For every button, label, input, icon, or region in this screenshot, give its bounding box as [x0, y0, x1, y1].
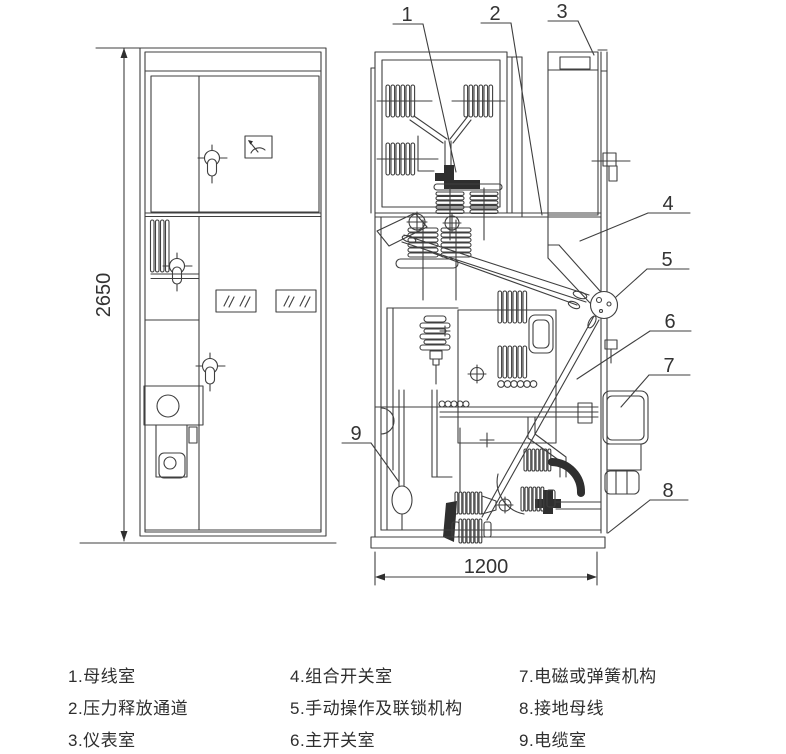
legend-item-1: 1.母线室 [68, 666, 188, 688]
legend-item-3: 3.仪表室 [68, 730, 188, 752]
callout-8: 8 [608, 480, 688, 533]
legend-item-2: 2.压力释放通道 [68, 698, 188, 720]
pressure-release-channel [507, 57, 522, 217]
technical-drawing: 2650 [0, 0, 786, 620]
side-view [371, 50, 648, 548]
svg-text:9: 9 [350, 423, 361, 445]
front-view [80, 48, 336, 543]
legend-item-6: 6.主开关室 [290, 730, 463, 752]
callout-1: 1 [393, 4, 456, 172]
callout-9: 9 [342, 423, 399, 482]
main-switch-room [420, 291, 598, 492]
panel-meter [245, 136, 272, 158]
door-handle [198, 145, 227, 183]
cable [392, 486, 412, 514]
legend-item-4: 4.组合开关室 [290, 666, 463, 688]
legend-column-3: 7.电磁或弹簧机构 8.接地母线 9.电缆室 [519, 666, 657, 754]
operating-mechanism [144, 386, 203, 478]
observation-window [216, 290, 256, 312]
linkage-rods [401, 234, 599, 520]
callout-7: 7 [621, 355, 690, 407]
svg-text:6: 6 [664, 311, 675, 333]
legend-column-1: 1.母线室 2.压力释放通道 3.仪表室 [68, 666, 188, 754]
svg-text:4: 4 [662, 193, 673, 215]
dimension-height-value: 2650 [93, 273, 115, 318]
spring-mechanism [603, 340, 648, 494]
legend-item-5: 5.手动操作及联锁机构 [290, 698, 463, 720]
manual-operation-disc [591, 292, 618, 319]
busbar-room [371, 52, 507, 240]
callout-3: 3 [548, 1, 594, 55]
door-handle [196, 353, 225, 391]
legend: 1.母线室 2.压力释放通道 3.仪表室 4.组合开关室 5.手动操作及联锁机构… [0, 660, 786, 754]
svg-text:3: 3 [556, 1, 567, 23]
svg-text:5: 5 [661, 249, 672, 271]
callout-5: 5 [616, 249, 689, 297]
svg-text:8: 8 [662, 480, 673, 502]
page: 2650 [0, 0, 786, 754]
dimension-width: 1200 [375, 552, 597, 585]
legend-item-9: 9.电缆室 [519, 730, 657, 752]
svg-text:7: 7 [663, 355, 674, 377]
callouts: 1 2 3 4 5 6 7 8 [342, 1, 691, 533]
legend-item-7: 7.电磁或弹簧机构 [519, 666, 657, 688]
vent-grille [151, 220, 170, 272]
observation-window [276, 290, 316, 312]
svg-text:1: 1 [401, 4, 412, 26]
svg-text:2: 2 [489, 3, 500, 25]
legend-item-8: 8.接地母线 [519, 698, 657, 720]
dimension-width-value: 1200 [464, 556, 509, 578]
dimension-height: 2650 [93, 48, 140, 541]
cable-room [381, 390, 601, 543]
legend-column-2: 4.组合开关室 5.手动操作及联锁机构 6.主开关室 [290, 666, 463, 754]
